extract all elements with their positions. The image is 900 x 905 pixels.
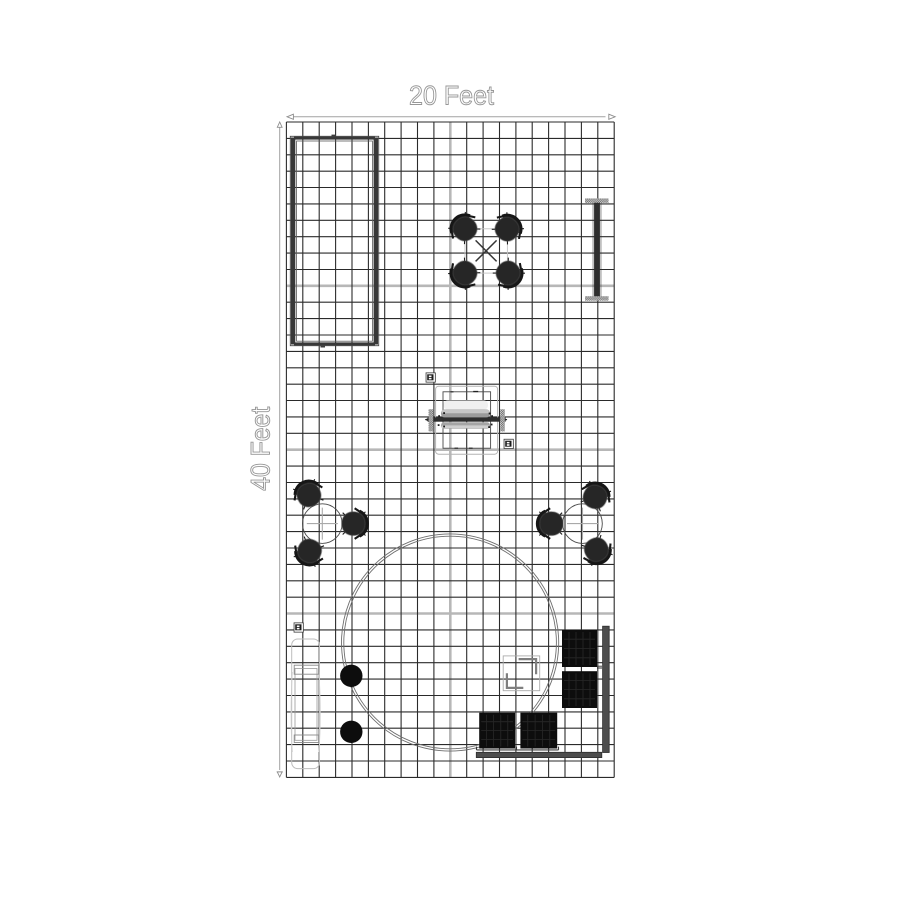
svg-text:20 Feet: 20 Feet xyxy=(409,81,494,111)
svg-text:40 Feet: 40 Feet xyxy=(246,406,276,490)
